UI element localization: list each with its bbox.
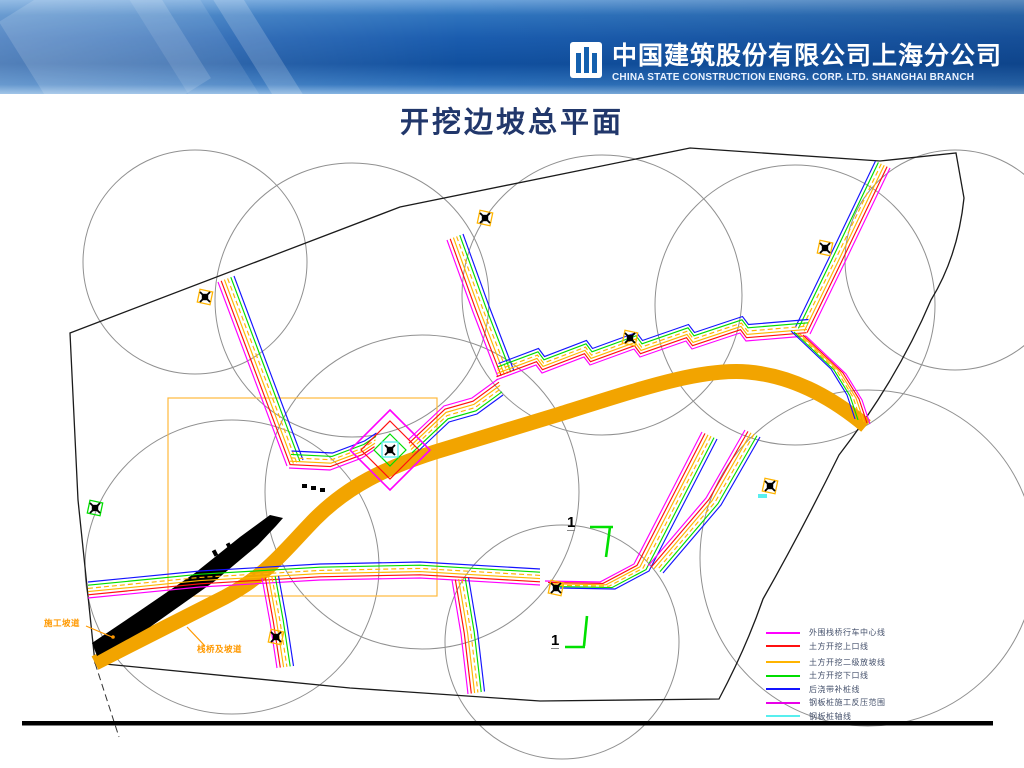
legend-color-line [766, 702, 800, 704]
section-marker-1: 1 [567, 515, 575, 531]
tower-crane-icon [385, 445, 395, 455]
tower-crane-icon [817, 240, 832, 255]
site-boundary-ext [95, 663, 119, 737]
legend-item: 土方开挖上口线 [766, 639, 1016, 652]
crane-radius-circle [655, 165, 935, 445]
legend-color-line [766, 675, 800, 677]
legend-color-line [766, 715, 800, 717]
legend-item: 钢板桩轴线 [766, 709, 1016, 722]
annotation-road: 栈桥及坡道 [197, 643, 242, 655]
crane-radius-circle [845, 150, 1024, 370]
leader-dot [111, 635, 115, 639]
legend-item: 钢板桩施工反压范围 [766, 696, 1016, 709]
legend-item: 后浇带补桩线 [766, 683, 1016, 696]
section-line-2 [565, 616, 587, 647]
tower-crane-icon [622, 330, 637, 345]
tower-crane-icon [197, 289, 212, 304]
legend-color-line [766, 661, 800, 663]
slide: 中国建筑股份有限公司上海分公司 CHINA STATE CONSTRUCTION… [0, 0, 1024, 768]
legend-item: 外围栈桥行车中心线 [766, 626, 1016, 639]
annotation-ramp: 施工坡道 [44, 617, 80, 629]
slope-line-bundle [545, 432, 717, 589]
legend-color-line [766, 632, 800, 634]
slope-line-bundle [452, 578, 485, 695]
slope-line-bundle [791, 331, 870, 424]
section-marker-2: 1 [551, 633, 559, 649]
legend-item: 土方开挖下口线 [766, 669, 1016, 682]
slope-line-bundle [218, 276, 303, 466]
legend-color-line [766, 688, 800, 690]
trestle-road [95, 372, 866, 663]
slope-line-bundle [447, 234, 514, 377]
tower-crane-icon [762, 478, 777, 493]
legend: 外围栈桥行车中心线 土方开挖上口线 土方开挖二级放坡线 土方开挖下口线 后浇带补… [766, 626, 1016, 723]
crane-radius-circle [83, 150, 307, 374]
tower-crane-icon [477, 210, 492, 225]
slope-line-bundle [262, 576, 294, 668]
slope-line-bundles [88, 161, 890, 694]
leader-line-ramp [86, 626, 112, 637]
legend-color-line [766, 645, 800, 647]
crane-radius-circle [215, 163, 489, 437]
slope-line-bundle [648, 430, 760, 573]
legend-item: 土方开挖二级放坡线 [766, 656, 1016, 669]
slope-line-bundle [796, 161, 891, 334]
crane-radius-circle [265, 335, 579, 649]
